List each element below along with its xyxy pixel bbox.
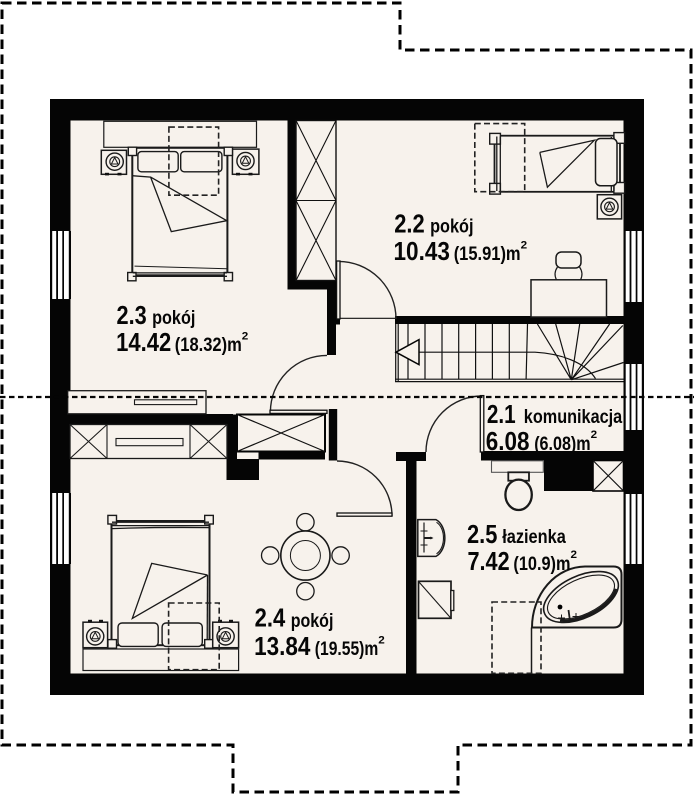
svg-text:14.42: 14.42 bbox=[116, 329, 171, 357]
svg-text:13.84: 13.84 bbox=[254, 633, 311, 661]
svg-text:2: 2 bbox=[571, 549, 578, 561]
svg-text:(10.9)m: (10.9)m bbox=[513, 553, 570, 575]
svg-text:(15.91)m: (15.91)m bbox=[454, 243, 521, 265]
svg-text:2: 2 bbox=[378, 635, 385, 647]
svg-text:2.2: 2.2 bbox=[394, 210, 425, 238]
svg-text:komunikacja: komunikacja bbox=[524, 406, 623, 428]
svg-text:(19.55)m: (19.55)m bbox=[315, 638, 379, 660]
svg-text:2: 2 bbox=[242, 331, 249, 343]
svg-text:2: 2 bbox=[591, 429, 598, 441]
svg-text:2.4: 2.4 bbox=[255, 605, 286, 633]
svg-text:łazienka: łazienka bbox=[502, 526, 566, 548]
svg-text:2.3: 2.3 bbox=[117, 302, 147, 330]
svg-text:6.08: 6.08 bbox=[486, 428, 530, 456]
svg-text:10.43: 10.43 bbox=[394, 238, 450, 266]
svg-text:7.42: 7.42 bbox=[468, 548, 510, 576]
svg-text:2: 2 bbox=[521, 240, 528, 252]
svg-text:(6.08)m: (6.08)m bbox=[534, 433, 590, 455]
svg-text:(18.32)m: (18.32)m bbox=[175, 334, 242, 356]
svg-text:pokój: pokój bbox=[291, 610, 334, 632]
svg-text:pokój: pokój bbox=[152, 307, 195, 329]
svg-text:2.5: 2.5 bbox=[467, 521, 497, 549]
svg-text:2.1: 2.1 bbox=[487, 401, 516, 429]
svg-text:pokój: pokój bbox=[430, 215, 473, 237]
